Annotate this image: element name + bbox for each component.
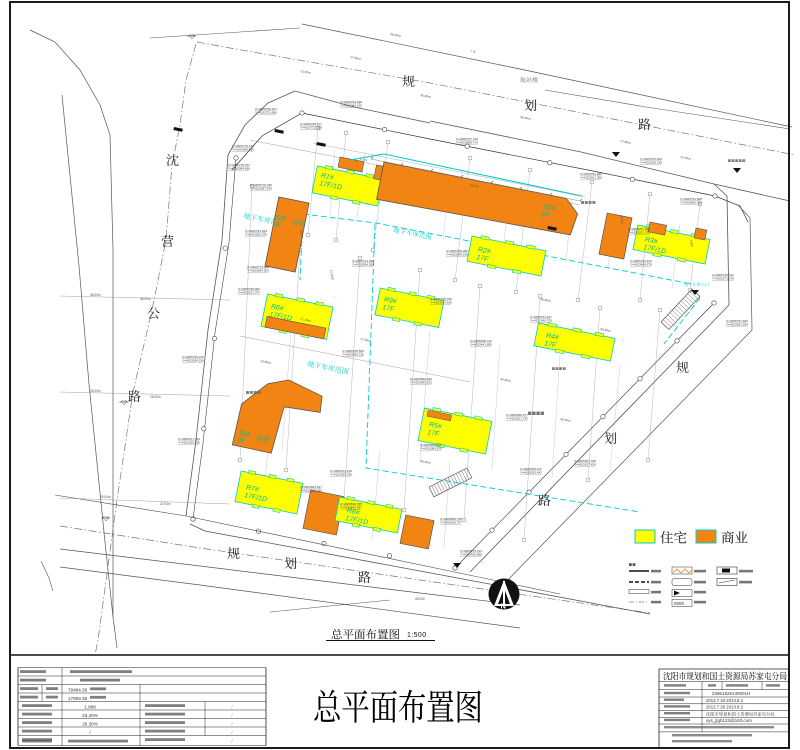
svg-text:Y=4153335.036: Y=4153335.036 <box>178 441 200 445</box>
svg-text:38.00m: 38.00m <box>140 297 151 301</box>
svg-text:20.93m: 20.93m <box>160 502 171 506</box>
svg-text:23961826130001H: 23961826130001H <box>712 691 750 696</box>
svg-text:Y=4153335.050: Y=4153335.050 <box>300 489 322 493</box>
svg-text:Y=4153561.034: Y=4153561.034 <box>726 323 748 327</box>
svg-text:Y=4153436.886: Y=4153436.886 <box>460 553 482 557</box>
svg-text:Y=4153441.806: Y=4153441.806 <box>470 343 492 347</box>
svg-text:Y=4153338.145: Y=4153338.145 <box>640 161 662 165</box>
svg-text:Y=4153241.630: Y=4153241.630 <box>430 301 452 305</box>
svg-text:17908.35: 17908.35 <box>68 696 88 701</box>
svg-text:Y=4153054.309: Y=4153054.309 <box>247 269 269 273</box>
svg-text:25.00m: 25.00m <box>90 389 101 393</box>
svg-text:sys_jtgh123@163.com: sys_jtgh123@163.com <box>706 718 752 723</box>
svg-text:Y=4153722.298: Y=4153722.298 <box>300 126 322 130</box>
svg-text:1.998: 1.998 <box>84 704 96 709</box>
svg-text:1:500: 1:500 <box>407 632 427 639</box>
svg-text:Y=4153921.068: Y=4153921.068 <box>580 176 602 180</box>
svg-text:Y=4153521.742: Y=4153521.742 <box>506 417 528 421</box>
svg-text:Y=4153033.442: Y=4153033.442 <box>520 471 542 475</box>
svg-text:23.20%: 23.20% <box>82 713 98 718</box>
svg-text:Y=4153506.714: Y=4153506.714 <box>456 141 478 145</box>
svg-text:2013.7.20 2013.8.2: 2013.7.20 2013.8.2 <box>706 705 744 710</box>
svg-text:2013.7.20 2013.8.2: 2013.7.20 2013.8.2 <box>706 698 744 703</box>
svg-text:Y=4153340.703: Y=4153340.703 <box>530 319 552 323</box>
svg-text:26.30%: 26.30% <box>82 721 98 726</box>
svg-text:Y=4153097.876: Y=4153097.876 <box>250 187 272 191</box>
svg-text:Y=4153566.763: Y=4153566.763 <box>680 201 702 205</box>
svg-text:44.800: 44.800 <box>119 400 129 404</box>
svg-text:Y=4153331.075: Y=4153331.075 <box>238 291 260 295</box>
svg-text:Y=4153094.836: Y=4153094.836 <box>228 167 250 171</box>
svg-text:N: N <box>501 602 506 611</box>
svg-text:Y=4153380.145: Y=4153380.145 <box>340 104 362 108</box>
svg-text:Y=4153420.767: Y=4153420.767 <box>440 521 462 525</box>
svg-text:Y=4153721.060: Y=4153721.060 <box>255 111 277 115</box>
svg-text:44.800: 44.800 <box>187 34 197 38</box>
svg-text:44.800: 44.800 <box>101 516 111 520</box>
svg-text:Y=4153483.503: Y=4153483.503 <box>410 381 432 385</box>
svg-text:Y=4153035.036: Y=4153035.036 <box>330 473 352 477</box>
svg-text:Y=4153271.178: Y=4153271.178 <box>712 277 734 281</box>
svg-text:38.00m: 38.00m <box>90 293 101 297</box>
svg-text:25.00m: 25.00m <box>150 395 161 399</box>
svg-text:Y=4153240.236: Y=4153240.236 <box>446 253 468 257</box>
svg-text:Y=4153054.836: Y=4153054.836 <box>232 148 254 152</box>
svg-text:0000: 0000 <box>674 601 685 606</box>
svg-text:25.00m: 25.00m <box>100 495 111 499</box>
svg-text:Y=4153327.426: Y=4153327.426 <box>574 463 596 467</box>
svg-text:Y=4153034.236: Y=4153034.236 <box>182 359 204 363</box>
svg-text:Y=4153392.876: Y=4153392.876 <box>245 233 267 237</box>
svg-text:Y=4153054.309: Y=4153054.309 <box>352 263 374 267</box>
svg-text:Y=4153083.670: Y=4153083.670 <box>420 447 442 451</box>
svg-text:Y=4153445.067: Y=4153445.067 <box>340 506 362 510</box>
svg-text:Y=4153331.075: Y=4153331.075 <box>628 231 650 235</box>
svg-text:45.050: 45.050 <box>415 597 425 601</box>
svg-text:79484.36: 79484.36 <box>68 687 88 692</box>
svg-text:Y=4153286.215: Y=4153286.215 <box>342 353 364 357</box>
svg-text:Y=4153404.276: Y=4153404.276 <box>630 263 652 267</box>
